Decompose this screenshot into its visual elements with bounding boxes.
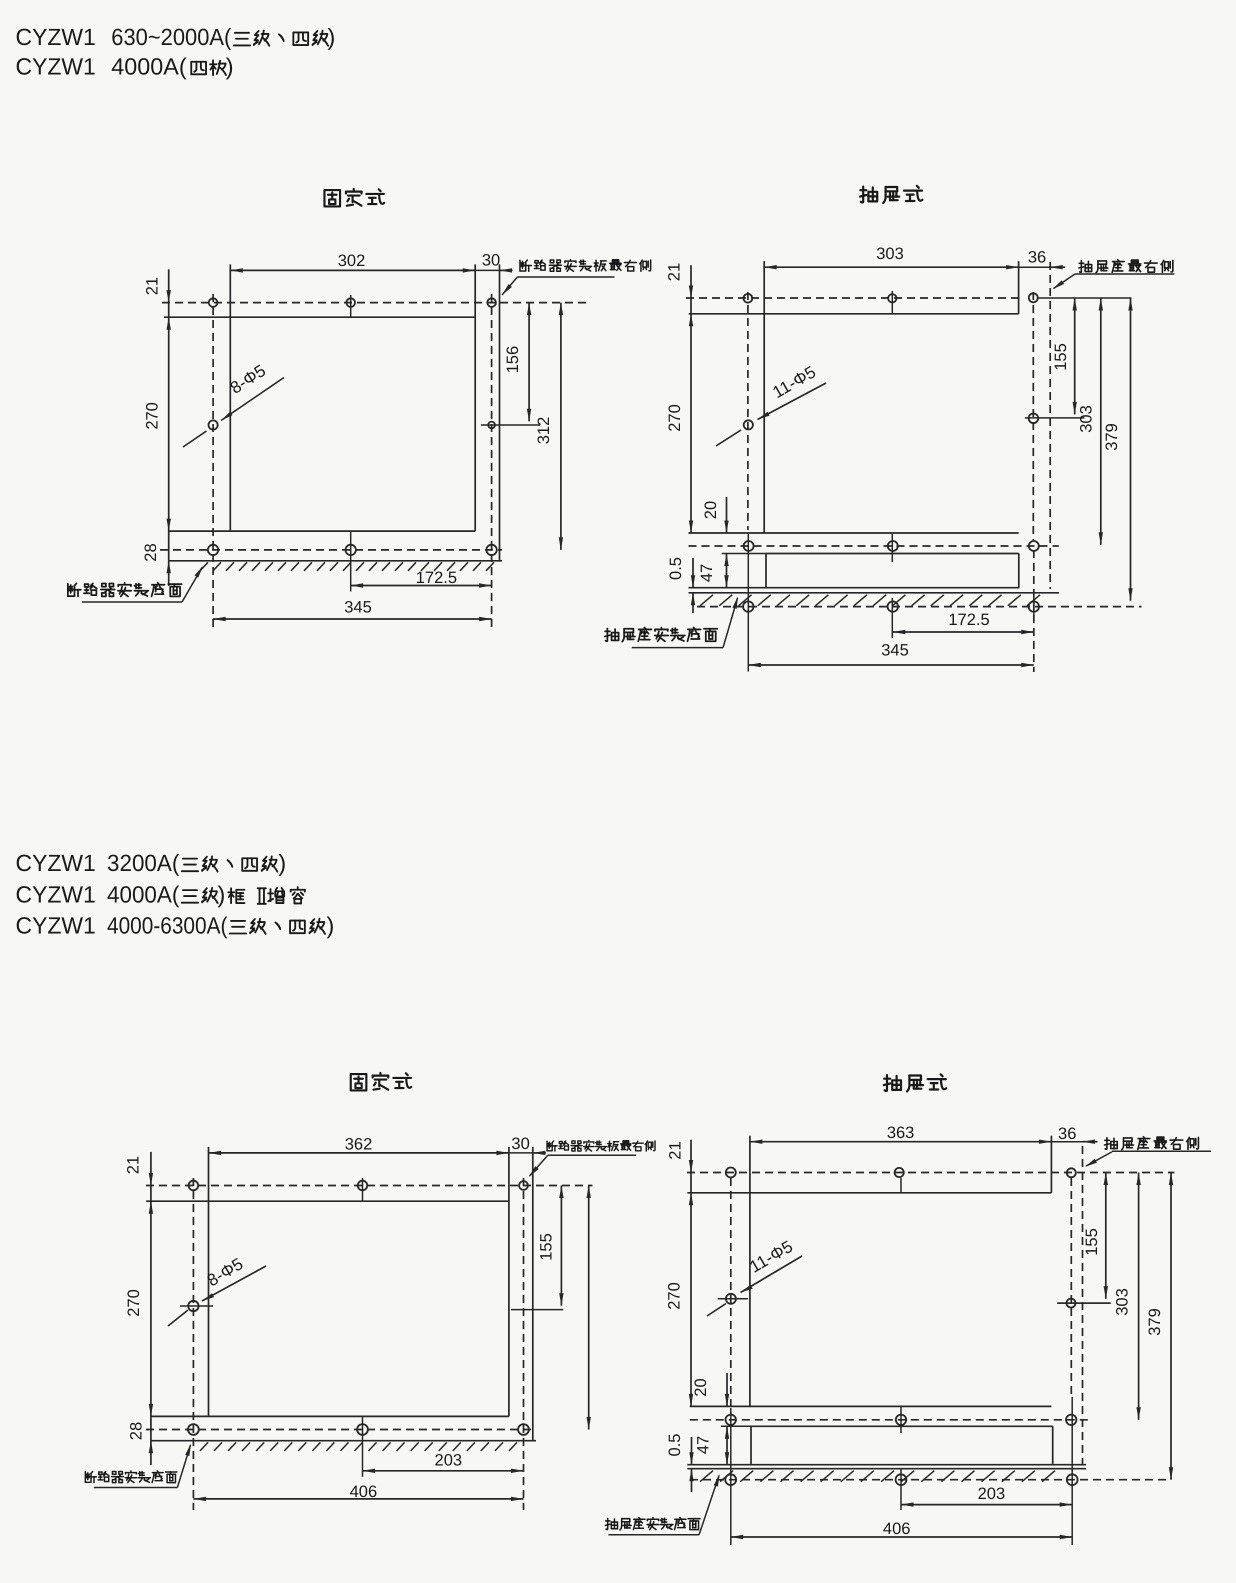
svg-text:172.5: 172.5 bbox=[948, 611, 989, 629]
svg-text:203: 203 bbox=[978, 1485, 1006, 1503]
svg-text:379: 379 bbox=[1103, 423, 1121, 451]
svg-text:21: 21 bbox=[666, 263, 684, 281]
svg-text:CYZW1: CYZW1 bbox=[16, 53, 96, 79]
svg-text:155: 155 bbox=[1052, 343, 1070, 371]
svg-text:CYZW1: CYZW1 bbox=[16, 24, 96, 50]
svg-text:30: 30 bbox=[511, 1135, 529, 1153]
svg-text:630~2000A(: 630~2000A( bbox=[111, 24, 231, 50]
svg-text:21: 21 bbox=[125, 1156, 143, 1174]
svg-text:36: 36 bbox=[1028, 249, 1046, 267]
svg-text:362: 362 bbox=[345, 1136, 373, 1154]
svg-text:): ) bbox=[278, 850, 286, 876]
svg-text:406: 406 bbox=[350, 1483, 378, 1501]
svg-text:270: 270 bbox=[143, 402, 161, 430]
svg-text:363: 363 bbox=[887, 1124, 915, 1142]
svg-text:303: 303 bbox=[1114, 1288, 1132, 1316]
svg-text:47: 47 bbox=[695, 1436, 713, 1454]
svg-text:20: 20 bbox=[692, 1378, 710, 1396]
svg-text:345: 345 bbox=[344, 599, 372, 617]
svg-text:CYZW1: CYZW1 bbox=[16, 850, 96, 876]
svg-text:155: 155 bbox=[1083, 1228, 1101, 1256]
svg-text:28: 28 bbox=[142, 543, 160, 561]
svg-text:302: 302 bbox=[338, 252, 366, 270]
svg-text:3200A(: 3200A( bbox=[107, 850, 179, 876]
svg-text:270: 270 bbox=[125, 1289, 143, 1317]
svg-text:155: 155 bbox=[538, 1233, 556, 1261]
svg-text:20: 20 bbox=[702, 501, 720, 519]
svg-text:270: 270 bbox=[666, 1282, 684, 1310]
svg-text:4000A(: 4000A( bbox=[107, 882, 179, 908]
svg-text:303: 303 bbox=[1078, 405, 1096, 433]
svg-text:270: 270 bbox=[666, 404, 684, 432]
svg-text:406: 406 bbox=[883, 1520, 911, 1538]
svg-text:): ) bbox=[226, 53, 234, 79]
svg-text:312: 312 bbox=[535, 417, 553, 445]
svg-text:21: 21 bbox=[667, 1141, 685, 1159]
svg-text:36: 36 bbox=[1058, 1125, 1076, 1143]
svg-text:156: 156 bbox=[504, 346, 522, 374]
svg-text:172.5: 172.5 bbox=[416, 569, 457, 587]
svg-text:30: 30 bbox=[482, 252, 500, 270]
svg-text:4000A(: 4000A( bbox=[111, 53, 186, 79]
svg-text:CYZW1: CYZW1 bbox=[16, 912, 96, 938]
svg-text:): ) bbox=[328, 24, 336, 50]
svg-text:379: 379 bbox=[1146, 1308, 1164, 1336]
svg-text:203: 203 bbox=[435, 1452, 463, 1470]
svg-text:28: 28 bbox=[128, 1422, 146, 1440]
svg-text:0.5: 0.5 bbox=[667, 557, 685, 580]
svg-text:21: 21 bbox=[143, 277, 161, 295]
svg-text:4000-6300A(: 4000-6300A( bbox=[107, 912, 228, 938]
svg-text:303: 303 bbox=[876, 245, 904, 263]
svg-text:47: 47 bbox=[698, 564, 716, 582]
svg-text:0.5: 0.5 bbox=[666, 1434, 684, 1457]
svg-text:): ) bbox=[327, 912, 335, 938]
svg-text:CYZW1: CYZW1 bbox=[16, 882, 96, 908]
svg-text:): ) bbox=[218, 882, 226, 908]
svg-text:345: 345 bbox=[881, 642, 909, 660]
